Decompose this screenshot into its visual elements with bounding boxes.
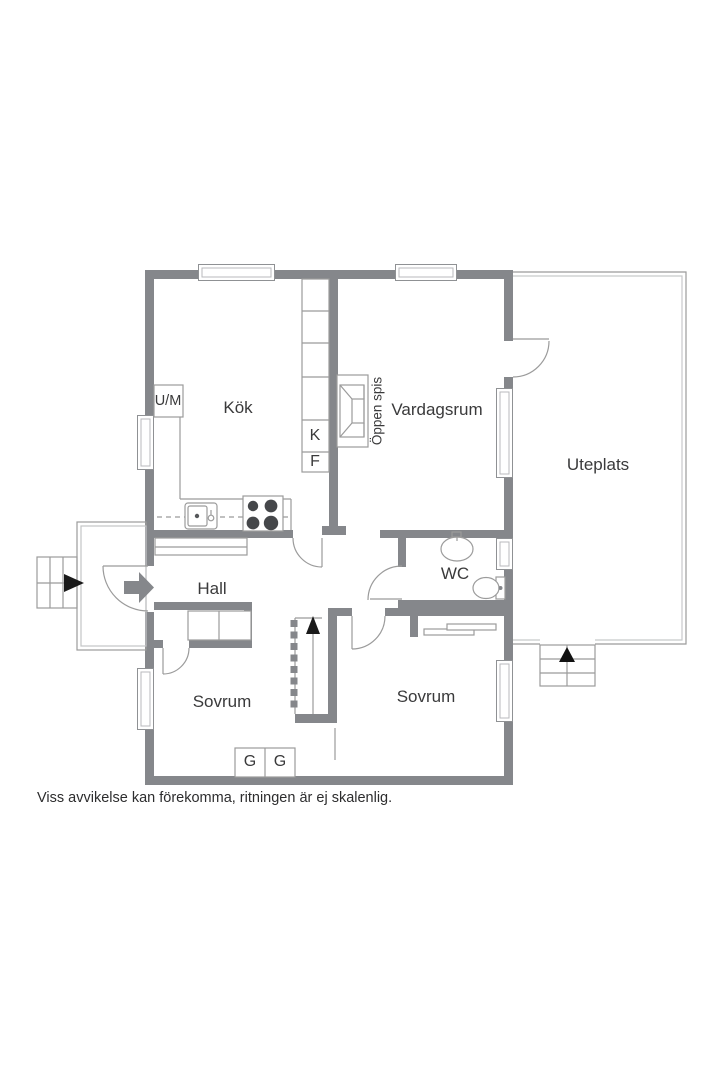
- room-label-wc: WC: [441, 564, 469, 584]
- disclaimer-text: Viss avvikelse kan förekomma, ritningen …: [37, 790, 392, 806]
- label-washer: U/M: [155, 393, 182, 409]
- label-wardrobe-2: G: [274, 753, 286, 771]
- toilet-icon: [473, 577, 505, 599]
- label-fireplace: Öppen spis: [370, 377, 385, 445]
- room-label-bedroom-left: Sovrum: [193, 692, 252, 712]
- room-label-patio: Uteplats: [567, 455, 629, 475]
- room-label-kitchen: Kök: [223, 398, 252, 418]
- fireplace-icon: [337, 375, 368, 447]
- door-bedroom2: [352, 616, 385, 649]
- kitchen-sink-icon: [185, 503, 217, 529]
- door-wc: [368, 566, 402, 600]
- label-freezer: F: [310, 453, 320, 471]
- label-fridge: K: [310, 427, 321, 445]
- plan-linework: [0, 0, 720, 1080]
- room-label-bedroom-right: Sovrum: [397, 687, 456, 707]
- door-living-patio: [513, 339, 549, 377]
- door-kitchen-hall: [293, 538, 322, 567]
- hall-shelf: [155, 538, 247, 555]
- room-label-living: Vardagsrum: [391, 400, 482, 420]
- hall-closet: [188, 611, 251, 640]
- bedroom2-shelf: [424, 624, 496, 635]
- floorplan: Kök Vardagsrum Uteplats Hall WC Sovrum S…: [0, 0, 720, 1080]
- stove-icon: [243, 496, 283, 531]
- entrance-arrow-icon: [124, 572, 154, 603]
- stairs-up-arrow-icon: [306, 616, 320, 634]
- staircase: [291, 616, 323, 714]
- room-label-hall: Hall: [197, 579, 226, 599]
- door-bedroom1: [163, 648, 189, 674]
- wc-sink-icon: [441, 532, 473, 561]
- label-wardrobe-1: G: [244, 753, 256, 771]
